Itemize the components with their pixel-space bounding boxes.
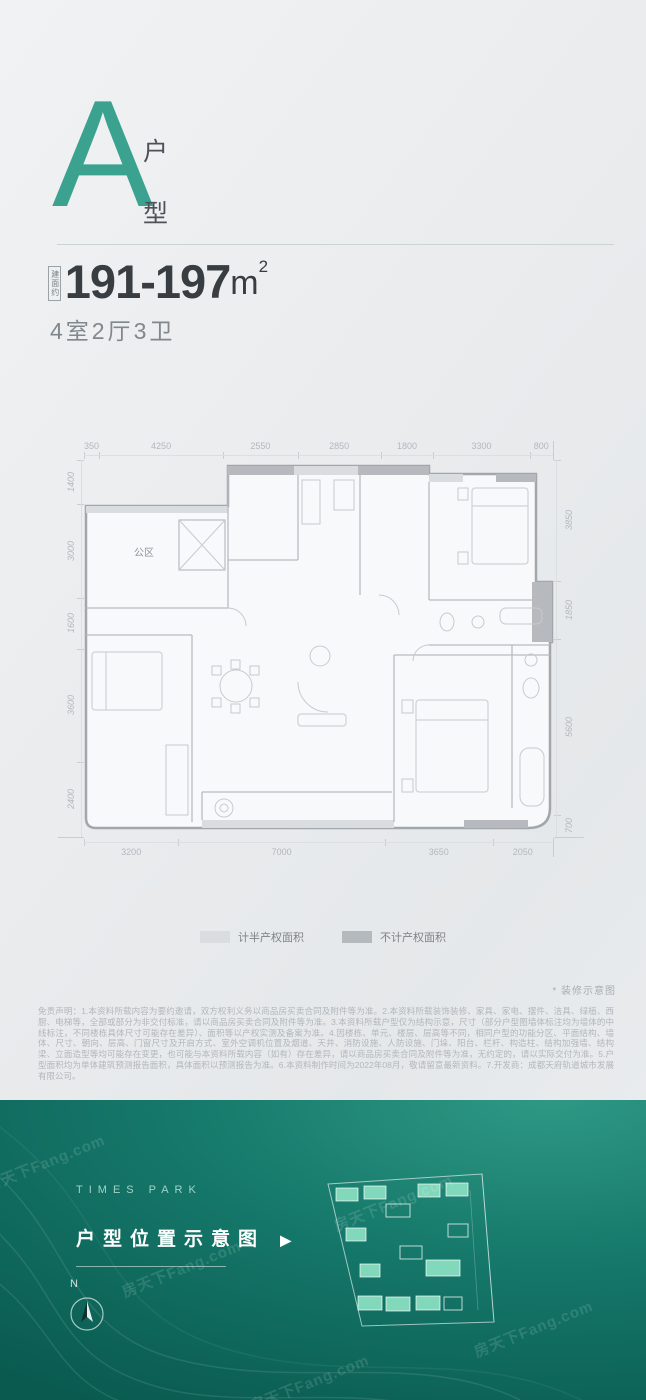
area-superscript: 2	[259, 257, 268, 276]
legend-swatch-no-property	[342, 931, 372, 943]
dim-label: 700	[564, 818, 574, 833]
site-plan-map	[320, 1170, 520, 1340]
dimension-row-top: 350 4250 2550 2850 1800 3300 800	[84, 436, 554, 460]
dim-label: 7000	[178, 838, 384, 857]
dim-label: 3850	[564, 510, 574, 530]
site-buildings-outline	[386, 1204, 468, 1310]
dim-label: 3650	[385, 838, 493, 857]
location-map-title[interactable]: 户型位置示意图 ▶	[76, 1224, 291, 1251]
dim-label: 800	[530, 441, 554, 460]
dimension-col-right: 3850 1850 5600 700	[554, 460, 584, 838]
compass-north-label: N	[70, 1278, 78, 1290]
dim-label: 3600	[66, 695, 76, 715]
dim-label: 1400	[66, 472, 76, 492]
dim-label: 3200	[84, 838, 178, 857]
area-unit: m2	[230, 266, 268, 300]
layout-summary: 4室2厅3卫	[50, 312, 175, 346]
dim-label: 2400	[66, 789, 76, 809]
legend-label: 不计产权面积	[380, 929, 446, 945]
legend-item: 不计产权面积	[342, 929, 446, 945]
legend-swatch-half-property	[200, 931, 230, 943]
dim-label: 5600	[564, 717, 574, 737]
dim-label: 1800	[381, 441, 434, 460]
brand-name: TIMES PARK	[76, 1184, 202, 1196]
header-divider	[57, 244, 614, 245]
area-line: 建面约 191-197 m2	[48, 258, 268, 305]
arrow-right-icon: ▶	[280, 1232, 291, 1248]
dim-label: 1850	[564, 600, 574, 620]
site-buildings-filled	[336, 1183, 468, 1311]
floor-plan-block: 350 4250 2550 2850 1800 3300 800 1400 30…	[58, 436, 584, 866]
compass: N	[66, 1278, 112, 1338]
dim-label: 2550	[223, 441, 297, 460]
dim-label: 1600	[66, 613, 76, 633]
unit-type-label: 户 型	[143, 132, 169, 230]
area-prefix-tag: 建面约	[48, 266, 61, 301]
page: A 户 型 建面约 191-197 m2 4室2厅3卫 350 4250 255…	[0, 0, 646, 1400]
floor-plan-drawing: 公区	[84, 460, 554, 838]
dim-label: 3300	[433, 441, 529, 460]
plan-legend: 计半产权面积 不计产权面积	[0, 929, 646, 945]
dim-label: 3000	[66, 541, 76, 561]
title-underline	[76, 1266, 226, 1267]
unit-type-char-bottom: 型	[143, 194, 169, 230]
dim-label: 4250	[99, 441, 223, 460]
dim-label: 350	[84, 441, 99, 460]
dim-label: 2850	[298, 441, 381, 460]
footer: TIMES PARK 户型位置示意图 ▶ N	[0, 1100, 646, 1400]
legend-item: 计半产权面积	[200, 929, 304, 945]
room-label-public: 公区	[134, 547, 154, 559]
disclaimer-text: 免责声明：1.本资料所载内容为要约邀请，双方权利义务以商品房买卖合同及附件等为准…	[38, 1006, 614, 1082]
legend-label: 计半产权面积	[238, 929, 304, 945]
plan-outline	[86, 466, 552, 828]
unit-type-char-top: 户	[143, 132, 169, 168]
unit-letter: A	[52, 78, 153, 230]
area-value: 191-197	[65, 258, 231, 305]
decoration-note: * 装修示意图	[552, 982, 616, 997]
dim-label: 2050	[493, 838, 554, 857]
dimension-row-bottom: 3200 7000 3650 2050	[84, 838, 554, 866]
dimension-col-left: 1400 3000 1600 3600 2400	[58, 460, 84, 838]
